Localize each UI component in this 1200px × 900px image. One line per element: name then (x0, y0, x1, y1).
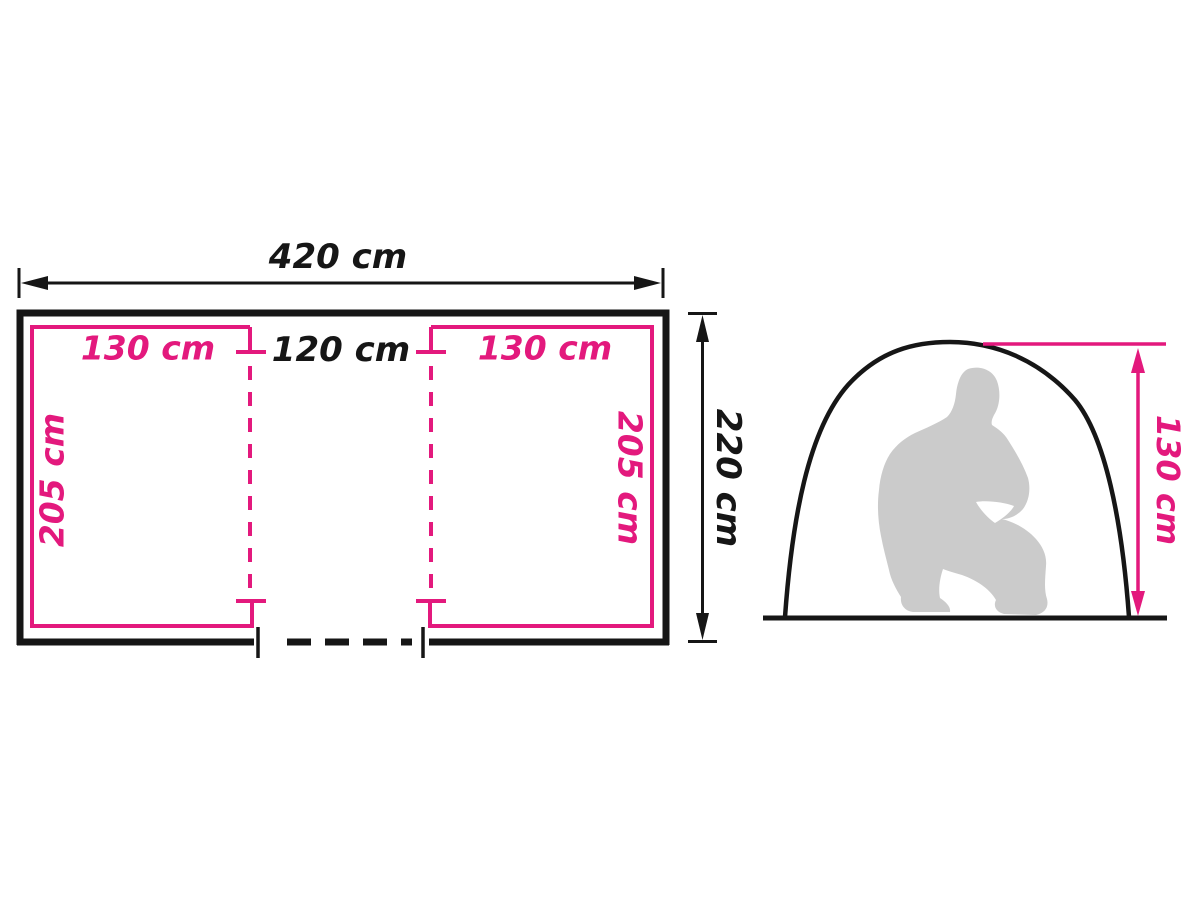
person-silhouette (878, 368, 1048, 615)
diagram-svg: 420 cm 130 cm 205 cm 120 cm 130 cm (0, 0, 1200, 900)
arrowhead-right-icon (634, 276, 661, 290)
right-cabin-width-label: 130 cm (478, 329, 612, 368)
arrowhead-left-icon (21, 276, 48, 290)
total-depth-dimension: 220 cm (688, 314, 748, 642)
total-depth-label: 220 cm (708, 409, 748, 547)
arrowhead-up-icon (1131, 348, 1145, 373)
right-cabin: 130 cm 205 cm (416, 327, 652, 626)
left-cabin: 130 cm 205 cm (32, 327, 266, 626)
total-width-dimension: 420 cm (19, 237, 663, 298)
left-cabin-depth-label: 205 cm (33, 413, 72, 547)
center-width-label: 120 cm (272, 330, 410, 370)
tent-dimensions-diagram: 420 cm 130 cm 205 cm 120 cm 130 cm (0, 0, 1200, 900)
tent-side-view: 130 cm (763, 342, 1187, 618)
arrowhead-down-icon (696, 613, 709, 640)
arrowhead-down-icon (1131, 591, 1145, 616)
total-width-label: 420 cm (268, 237, 407, 277)
arrowhead-up-icon (696, 315, 709, 342)
right-cabin-depth-label: 205 cm (611, 411, 650, 545)
left-cabin-width-label: 130 cm (81, 329, 215, 368)
inner-height-label: 130 cm (1149, 415, 1187, 545)
